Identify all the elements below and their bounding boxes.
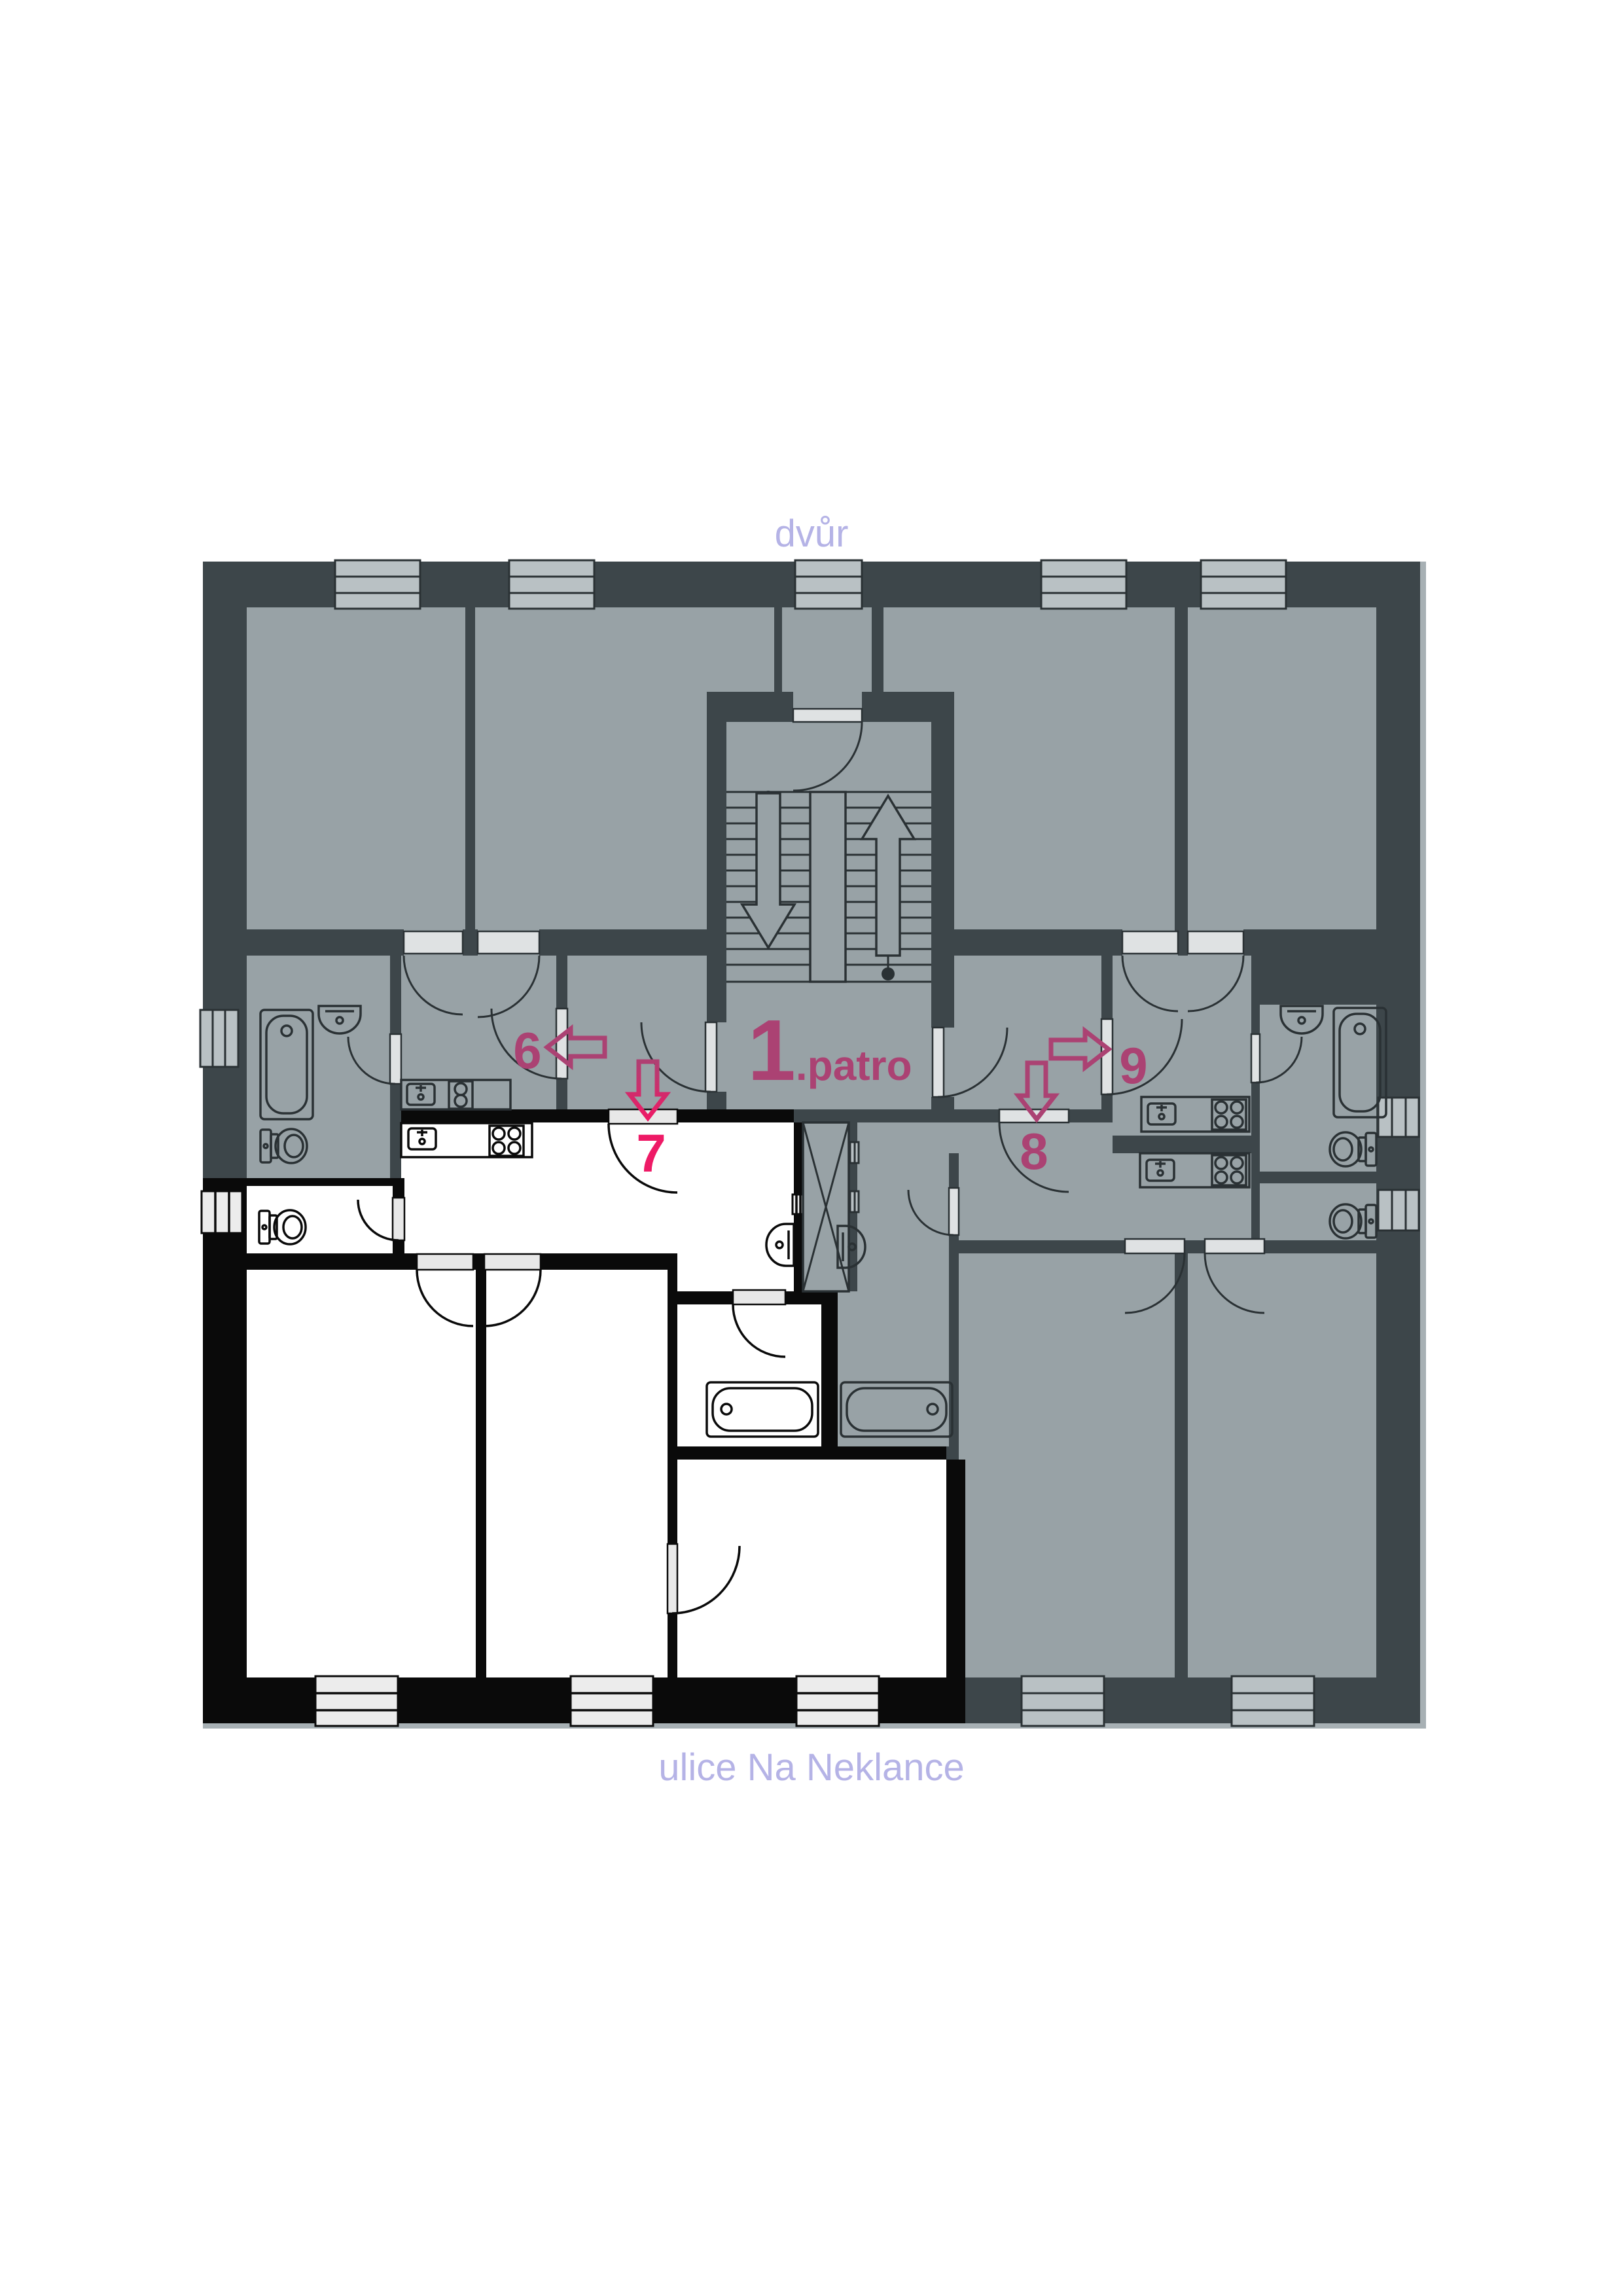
floor-plan-page: dvůr [0, 0, 1623, 2296]
courtyard-label: dvůr [775, 512, 849, 555]
ventilation-shaft [803, 1122, 849, 1291]
window-top-3 [1041, 560, 1126, 609]
window-bottom-roomB [1232, 1676, 1314, 1726]
window-bottom-roomA [1022, 1676, 1104, 1726]
window-bottom-room1 [315, 1676, 398, 1726]
apartment9-label: 9 [1119, 1037, 1147, 1094]
stair-end-dot [882, 967, 895, 980]
window-right-wc8 [1378, 1190, 1419, 1230]
kitchen-counter-apartment7 [401, 1123, 532, 1157]
floor-suffix: .patro [796, 1042, 912, 1089]
floor-plan-drawing: dvůr [0, 0, 1623, 2296]
window-bottom-room2 [571, 1676, 653, 1726]
apartment6-label: 6 [513, 1022, 541, 1079]
floor-number: 1 [747, 1002, 795, 1098]
apartment8-label: 8 [1020, 1122, 1048, 1180]
apartment7-label: 7 [636, 1124, 666, 1183]
window-top-4 [1201, 560, 1286, 609]
window-top-1 [335, 560, 420, 609]
window-left-wc7 [202, 1191, 242, 1233]
window-bottom-room3 [796, 1676, 879, 1726]
window-top-2 [509, 560, 594, 609]
street-label: ulice Na Neklance [658, 1746, 964, 1789]
window-left-bath6 [200, 1010, 238, 1067]
window-top-stairwell [795, 560, 862, 609]
